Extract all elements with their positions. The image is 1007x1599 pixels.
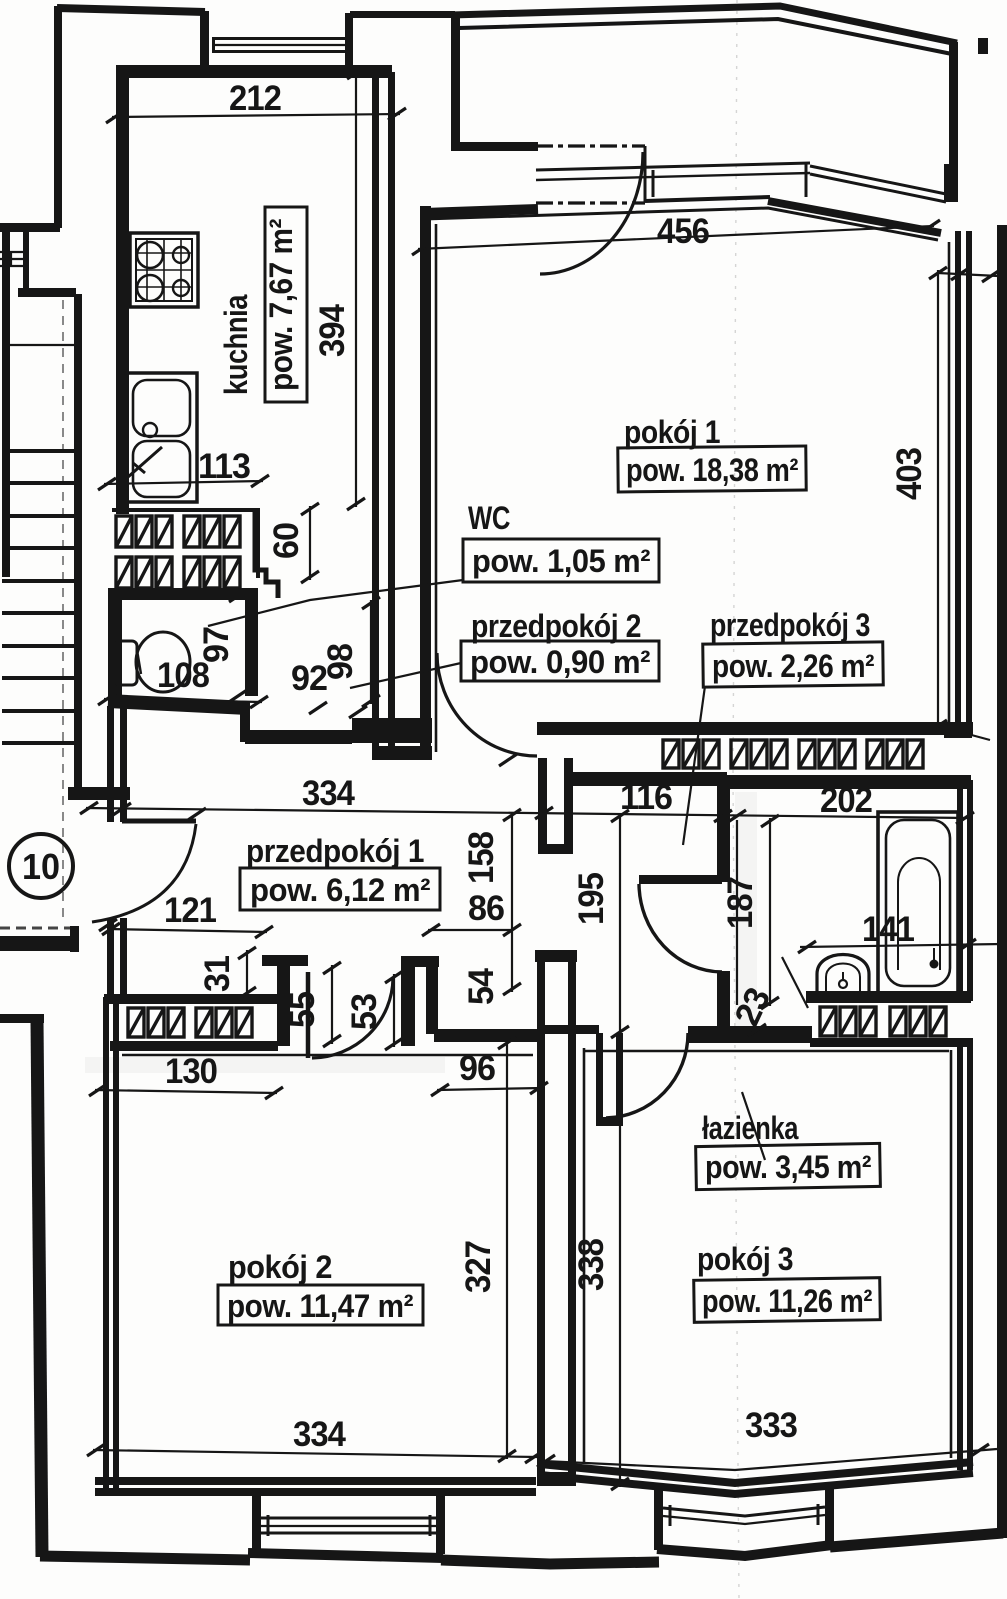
svg-text:338: 338	[572, 1239, 611, 1291]
svg-text:60: 60	[267, 522, 306, 559]
svg-text:334: 334	[302, 774, 355, 813]
svg-text:195: 195	[572, 873, 611, 925]
svg-text:przedpokój 2: przedpokój 2	[471, 608, 641, 644]
svg-text:327: 327	[459, 1241, 498, 1293]
svg-text:212: 212	[229, 79, 281, 118]
svg-text:pow. 1,05 m²: pow. 1,05 m²	[472, 543, 650, 579]
svg-text:334: 334	[293, 1415, 346, 1454]
svg-text:55: 55	[283, 991, 322, 1028]
svg-text:kuchnia: kuchnia	[218, 294, 254, 395]
svg-text:WC: WC	[468, 500, 510, 536]
svg-text:przedpokój 3: przedpokój 3	[710, 607, 870, 643]
svg-text:86: 86	[468, 889, 505, 928]
svg-text:403: 403	[890, 448, 929, 500]
svg-text:54: 54	[462, 968, 501, 1005]
svg-text:pow. 6,12 m²: pow. 6,12 m²	[250, 872, 430, 908]
svg-text:141: 141	[862, 910, 914, 949]
svg-text:pow. 11,26 m²: pow. 11,26 m²	[702, 1283, 872, 1319]
svg-text:456: 456	[657, 212, 709, 251]
svg-text:pow. 3,45 m²: pow. 3,45 m²	[705, 1149, 871, 1185]
svg-text:158: 158	[462, 832, 501, 884]
svg-text:pokój 2: pokój 2	[228, 1249, 332, 1285]
svg-text:202: 202	[820, 781, 872, 820]
svg-text:pow. 0,90 m²: pow. 0,90 m²	[470, 644, 650, 680]
svg-text:333: 333	[745, 1406, 797, 1445]
svg-text:pow. 18,38 m²: pow. 18,38 m²	[626, 452, 798, 488]
svg-text:pokój 3: pokój 3	[697, 1241, 793, 1277]
svg-text:pow. 11,47 m²: pow. 11,47 m²	[227, 1288, 413, 1324]
svg-text:113: 113	[198, 447, 251, 486]
svg-text:130: 130	[165, 1052, 217, 1091]
svg-text:31: 31	[198, 955, 237, 992]
svg-text:pow. 7,67 m²: pow. 7,67 m²	[263, 219, 299, 391]
svg-text:394: 394	[313, 304, 352, 357]
svg-text:przedpokój 1: przedpokój 1	[246, 833, 424, 869]
svg-text:pow. 2,26 m²: pow. 2,26 m²	[712, 648, 874, 684]
svg-text:121: 121	[164, 891, 216, 930]
svg-text:pokój 1: pokój 1	[624, 414, 720, 450]
svg-text:97: 97	[197, 627, 236, 663]
svg-text:98: 98	[321, 643, 360, 680]
svg-text:10: 10	[22, 846, 60, 887]
svg-text:187: 187	[721, 877, 760, 929]
svg-text:53: 53	[345, 993, 384, 1030]
